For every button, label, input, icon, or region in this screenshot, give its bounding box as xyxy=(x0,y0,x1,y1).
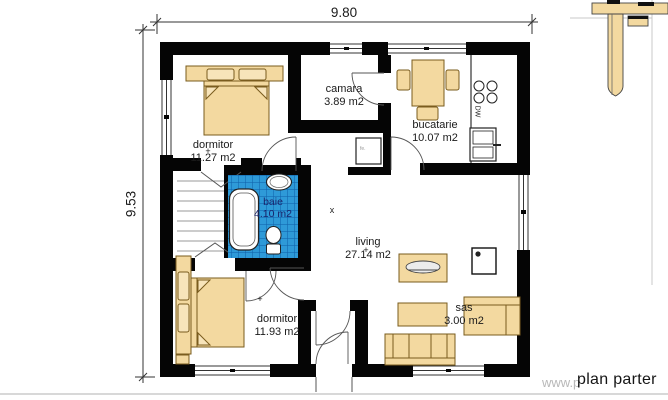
centroid-marker: + xyxy=(205,146,210,156)
room-name: dormitor xyxy=(254,313,299,326)
room-label-dormitor1: dormitor 11.27 m2 xyxy=(190,139,235,165)
room-area: 11.93 m2 xyxy=(254,326,299,339)
room-area: 10.07 m2 xyxy=(412,132,458,145)
heater-label: fe. xyxy=(360,146,366,152)
floor-plan-sheet: 9.80 9.53 dormitor 11.27 m2 camara 3.89 … xyxy=(0,0,668,400)
room-area: 3.00 m2 xyxy=(444,315,484,328)
room-name: camara xyxy=(324,83,364,96)
dimension-width-label: 9.80 xyxy=(331,5,357,20)
watermark-text: www.p xyxy=(542,375,580,390)
window-top-camara xyxy=(330,42,362,55)
coffee-table-icon xyxy=(399,254,447,282)
double-bed-bottom-icon xyxy=(176,256,244,364)
window-left-bedroom1 xyxy=(160,80,173,155)
room-area: 4.10 m2 xyxy=(254,208,292,220)
room-name: baie xyxy=(254,196,292,208)
kitchen-sink-icon xyxy=(470,128,501,161)
kitchen-table-icon xyxy=(397,60,459,120)
closet-shelves xyxy=(177,181,224,251)
entrance-steps xyxy=(316,377,352,392)
toilet-icon xyxy=(266,227,281,255)
room-label-dormitor2: dormitor 11.93 m2 xyxy=(254,313,299,339)
window-top-kitchen xyxy=(388,42,466,55)
sofa-icon xyxy=(385,334,455,365)
window-bottom-bedroom2 xyxy=(195,364,270,377)
room-area: 3.89 m2 xyxy=(324,96,364,109)
stove-icon xyxy=(474,81,497,103)
centroid-marker: + xyxy=(363,245,368,255)
plan-title: plan parter xyxy=(577,371,657,389)
room-name: dormitor xyxy=(190,139,235,152)
centroid-marker: + xyxy=(257,294,262,304)
window-bottom-living xyxy=(413,364,484,377)
room-label-sas: sas 3.00 m2 xyxy=(444,302,484,328)
window-right-living xyxy=(517,175,530,250)
double-bed-top-icon xyxy=(186,66,283,135)
floor-plan-drawing xyxy=(0,0,668,400)
dimension-height-label: 9.53 xyxy=(124,191,139,217)
room-label-bucatarie: bucatarie 10.07 m2 xyxy=(412,119,458,145)
dishwasher-label: DW xyxy=(473,106,480,118)
fireplace-icon xyxy=(472,248,496,274)
room-label-camara: camara 3.89 m2 xyxy=(324,83,364,109)
room-area: 11.27 m2 xyxy=(190,152,235,165)
washbasin-icon xyxy=(267,174,292,190)
room-label-baie: baie 4.10 m2 xyxy=(254,196,292,220)
sheet-corner-graphic xyxy=(592,0,668,96)
side-table-icon xyxy=(398,303,447,326)
room-name: bucatarie xyxy=(412,119,458,132)
cross-marker: x xyxy=(330,205,335,215)
room-name: sas xyxy=(444,302,484,315)
